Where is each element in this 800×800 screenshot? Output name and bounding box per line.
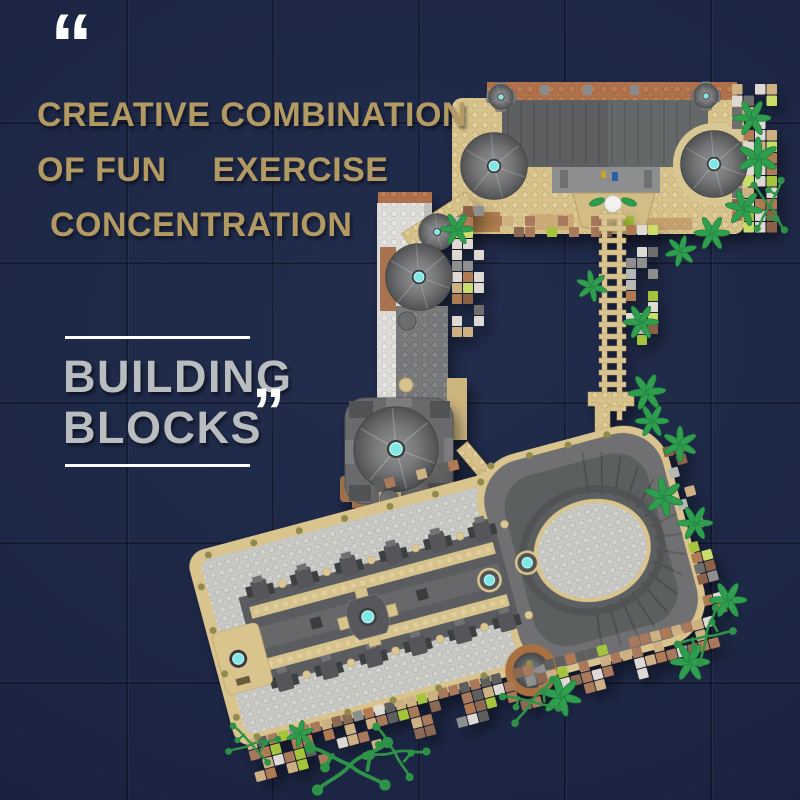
headline-line-2a: OF FUN bbox=[37, 151, 167, 189]
divider-top bbox=[65, 336, 250, 339]
open-quote-icon: “ bbox=[50, 2, 93, 88]
poster-background: “ CREATIVE COMBINATION OF FUNEXERCISE CO… bbox=[0, 0, 800, 800]
close-quote-icon: ” bbox=[252, 378, 285, 444]
headline-line-2b: EXERCISE bbox=[213, 151, 389, 189]
headline-line-1: CREATIVE COMBINATION bbox=[37, 88, 517, 143]
divider-bottom bbox=[65, 464, 250, 467]
headline-line-2: OF FUNEXERCISE bbox=[37, 143, 517, 198]
gallery-tower-large bbox=[386, 244, 453, 311]
headline: CREATIVE COMBINATION OF FUNEXERCISE CONC… bbox=[37, 88, 517, 253]
headline-line-3: CONCENTRATION bbox=[37, 198, 517, 253]
castle-tower-se bbox=[681, 131, 748, 198]
nave-cathedral bbox=[180, 402, 739, 785]
